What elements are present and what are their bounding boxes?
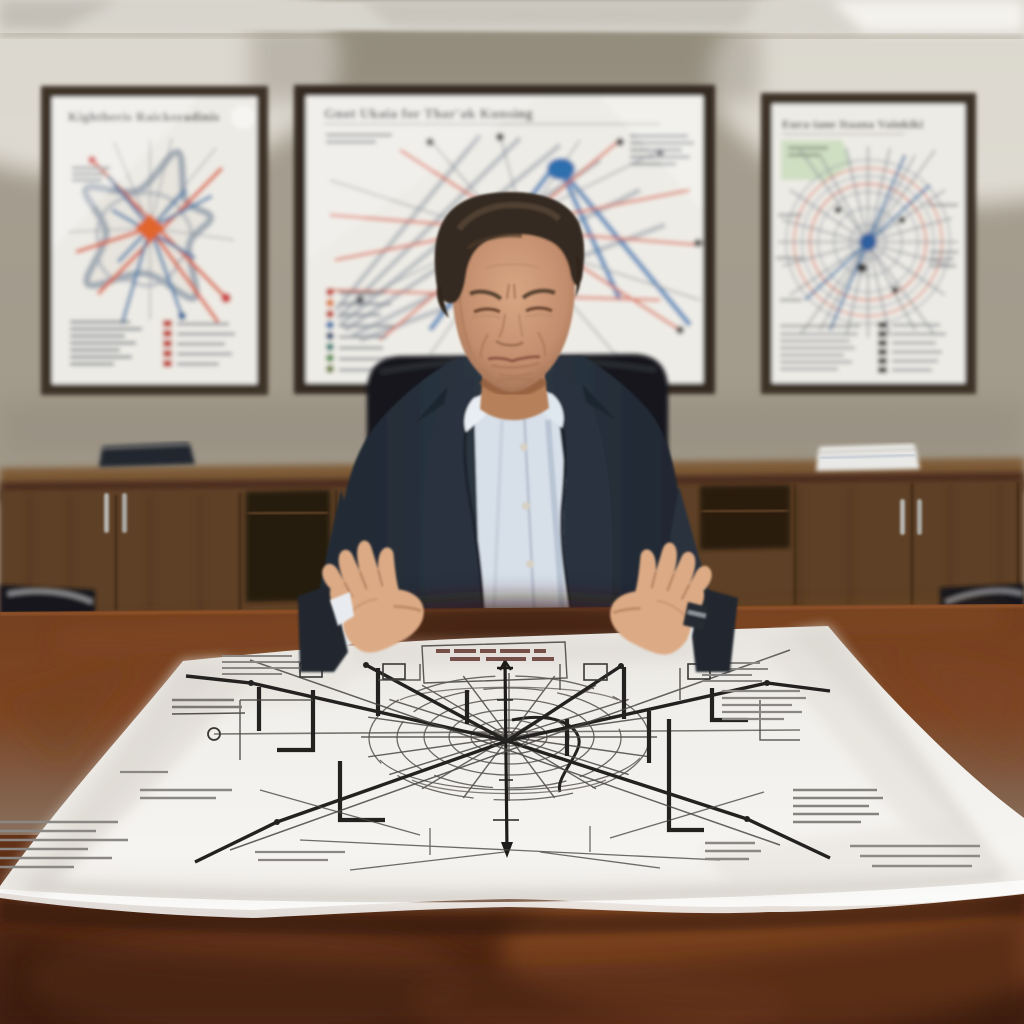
- svg-text:Eura-iane Itaana Vainkiki: Eura-iane Itaana Vainkiki: [782, 117, 924, 131]
